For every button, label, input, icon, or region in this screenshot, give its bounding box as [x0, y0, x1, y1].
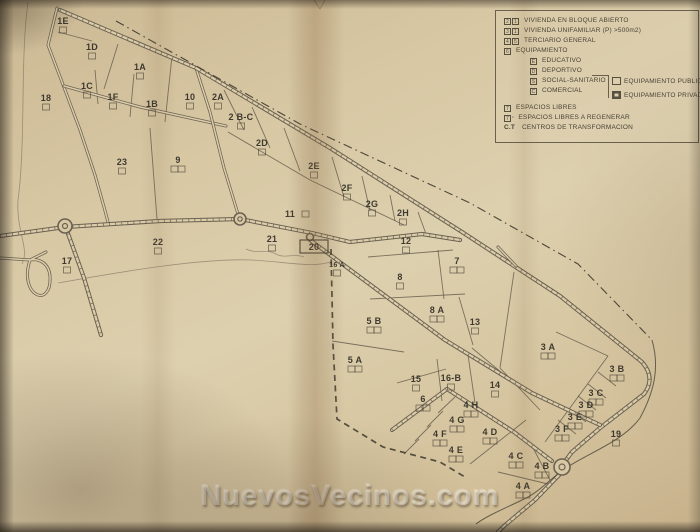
- parcel-label: 4 G: [449, 415, 464, 432]
- svg-text:4 C: 4 C: [509, 451, 524, 461]
- svg-text:4 F: 4 F: [433, 429, 447, 439]
- parcel-label: 10: [185, 92, 196, 109]
- parcel-label: 23: [117, 157, 128, 174]
- legend-symbol-box: 1: [512, 18, 519, 25]
- legend-zoning-rows: 21VIVIENDA EN BLOQUE ABIERTO31VIVIENDA U…: [504, 17, 696, 57]
- legend-row: 31VIVIENDA UNIFAMILIAR (P) >500m2): [504, 27, 696, 37]
- svg-text:1C: 1C: [81, 81, 93, 91]
- legend-symbol-box: 2: [504, 18, 511, 25]
- svg-text:3 C: 3 C: [589, 388, 604, 398]
- parcel-label: 21: [267, 234, 278, 251]
- parcel-label: 5 A: [348, 355, 363, 372]
- legend-symbol-box: 7: [504, 115, 511, 122]
- svg-text:5 B: 5 B: [367, 316, 382, 326]
- svg-text:4 H: 4 H: [464, 400, 479, 410]
- legend-open-space-rows: 7ESPACIOS LIBRES7·ESPACIOS LIBRES A REGE…: [504, 104, 696, 134]
- svg-text:3 D: 3 D: [579, 400, 594, 410]
- legend-symbol-box: 3: [504, 28, 511, 35]
- svg-text:2H: 2H: [397, 208, 409, 218]
- svg-text:3 A: 3 A: [541, 342, 556, 352]
- svg-text:4 A: 4 A: [516, 481, 531, 491]
- svg-text:20: 20: [309, 242, 320, 252]
- parcel-label: 2E: [308, 161, 320, 178]
- parcel-label: 11: [285, 209, 309, 219]
- svg-text:11: 11: [285, 209, 295, 219]
- parcel-label: 8: [397, 272, 404, 289]
- svg-text:4 E: 4 E: [449, 445, 463, 455]
- svg-text:1B: 1B: [146, 99, 158, 109]
- svg-text:8: 8: [397, 272, 402, 282]
- parcel-label: 3 B: [610, 364, 625, 381]
- legend-symbol-box: D: [530, 68, 537, 75]
- parcel-label: 1E: [57, 16, 69, 33]
- road-left-loop: [0, 252, 50, 295]
- svg-text:1E: 1E: [57, 16, 69, 26]
- parcel-label: 12: [401, 236, 412, 253]
- parcel-label: 5 B: [367, 316, 382, 333]
- parcel-label: 1B: [146, 99, 158, 116]
- svg-text:12: 12: [401, 236, 412, 246]
- legend-row: EEDUCATIVO: [530, 57, 696, 67]
- svg-text:4 G: 4 G: [449, 415, 464, 425]
- legend-row: C.TCENTROS DE TRANSFORMACION: [504, 124, 696, 134]
- svg-text:16-B: 16-B: [441, 373, 462, 383]
- legend-symbol-box: 7: [504, 105, 511, 112]
- svg-text:7: 7: [454, 256, 459, 266]
- svg-text:19: 19: [611, 429, 622, 439]
- svg-text:3 B: 3 B: [610, 364, 625, 374]
- parcel-label: 2 B-C: [228, 112, 253, 129]
- svg-text:13: 13: [470, 317, 481, 327]
- scanned-parcel-map: 1E1D1A1C1F1B10182A2 B-C2D2E2F2G2H2391122…: [0, 0, 700, 532]
- parcel-label: 1A: [134, 62, 146, 79]
- legend-row: 6EQUIPAMIENTO: [504, 47, 696, 57]
- parcel-label: 3 A: [541, 342, 556, 359]
- svg-text:18: 18: [41, 93, 52, 103]
- svg-text:22: 22: [153, 237, 164, 247]
- parcel-label: 15: [411, 374, 422, 391]
- parcel-label: 3 E: [568, 412, 582, 429]
- legend-symbol-box: 6: [504, 48, 511, 55]
- legend: 21VIVIENDA EN BLOQUE ABIERTO31VIVIENDA U…: [495, 10, 699, 143]
- svg-text:16 A: 16 A: [329, 262, 345, 269]
- legend-equipment-types: EQUIPAMIENTO PUBLICOEQUIPAMIENTO PRIVADO: [612, 77, 700, 105]
- parcel-label: 1C: [81, 81, 93, 98]
- parcel-label: 14: [490, 380, 501, 397]
- parcel-label: 22: [153, 237, 164, 254]
- legend-symbol-box: C: [530, 88, 537, 95]
- svg-text:8 A: 8 A: [430, 305, 445, 315]
- parcel-label: 4 F: [433, 429, 447, 446]
- parcel-label: 1D: [86, 42, 98, 59]
- svg-text:15: 15: [411, 374, 422, 384]
- svg-text:4 B: 4 B: [535, 461, 550, 471]
- legend-symbol-box: 1: [512, 28, 519, 35]
- svg-text:2A: 2A: [212, 92, 224, 102]
- svg-text:14: 14: [490, 380, 501, 390]
- svg-text:1F: 1F: [107, 92, 118, 102]
- legend-equipment-type: EQUIPAMIENTO PRIVADO: [612, 91, 700, 105]
- svg-text:2G: 2G: [366, 199, 379, 209]
- parcel-label: 4 E: [449, 445, 463, 462]
- svg-text:2D: 2D: [256, 138, 268, 148]
- svg-text:10: 10: [185, 92, 196, 102]
- road-southwest-stub: [66, 228, 101, 335]
- legend-symbol-box: S: [530, 78, 537, 85]
- parcel-label: 4 A: [516, 481, 531, 498]
- legend-row: 7ESPACIOS LIBRES: [504, 104, 696, 114]
- parcel-label: 3 F: [555, 424, 569, 441]
- svg-text:9: 9: [175, 155, 180, 165]
- svg-text:2F: 2F: [341, 183, 352, 193]
- svg-text:1A: 1A: [134, 62, 146, 72]
- parcel-label: 19: [611, 429, 622, 446]
- parcel-label: 4 C: [509, 451, 524, 468]
- svg-text:2E: 2E: [308, 161, 320, 171]
- parcel-label: 2G: [366, 199, 379, 216]
- legend-row: 21VIVIENDA EN BLOQUE ABIERTO: [504, 17, 696, 27]
- svg-text:5 A: 5 A: [348, 355, 363, 365]
- legend-equipment-type: EQUIPAMIENTO PUBLICO: [612, 77, 700, 91]
- legend-row: 45TERCIARIO GENERAL: [504, 37, 696, 47]
- parcel-label: 7: [450, 256, 464, 273]
- parcel-label: 2A: [212, 92, 224, 109]
- legend-connector-line: [592, 75, 609, 98]
- svg-text:3 E: 3 E: [568, 412, 582, 422]
- svg-text:6: 6: [420, 394, 425, 404]
- svg-text:1D: 1D: [86, 42, 98, 52]
- legend-row: DDEPORTIVO: [530, 67, 696, 77]
- parcel-label: 1F: [107, 92, 118, 109]
- svg-text:4 D: 4 D: [483, 427, 498, 437]
- legend-symbol-box: 4: [504, 38, 511, 45]
- parcel-label: 4 H: [464, 400, 479, 417]
- terrain-lines: [18, 0, 330, 283]
- svg-text:2 B-C: 2 B-C: [228, 112, 253, 122]
- svg-text:23: 23: [117, 157, 128, 167]
- parcel-label: 9: [171, 155, 185, 172]
- legend-symbol-box: E: [530, 58, 537, 65]
- parcel-label: 4 D: [483, 427, 498, 444]
- road-perimeter-left: [48, 8, 108, 222]
- parcel-label: 18: [41, 93, 52, 110]
- parcel-label: 13: [470, 317, 481, 334]
- parcel-label: 8 A: [430, 305, 445, 322]
- legend-symbol-box: 5: [512, 38, 519, 45]
- parcel-label: 17: [62, 256, 73, 273]
- parcel-label: 16-B: [441, 373, 462, 390]
- svg-text:17: 17: [62, 256, 73, 266]
- svg-text:21: 21: [267, 234, 278, 244]
- svg-text:3 F: 3 F: [555, 424, 569, 434]
- legend-row: 7·ESPACIOS LIBRES A REGENERAR: [504, 114, 696, 124]
